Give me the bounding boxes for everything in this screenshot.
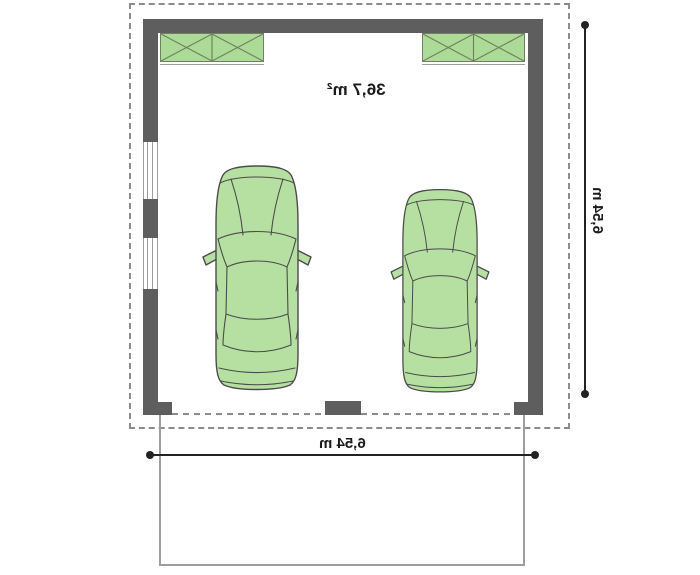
crossed-box-icon [423, 34, 524, 61]
wall-left-lower [143, 289, 158, 415]
dimension-label-right-text: 6,54 m [588, 187, 605, 234]
dimension-dot [581, 390, 589, 398]
dimension-dot [531, 451, 539, 459]
garage-floor-plan: 36,7 m² 6,54 m 6,54 m [0, 0, 700, 575]
dimension-line-bottom [150, 454, 535, 456]
wall-pier-middle [325, 401, 361, 415]
wall-pier-right [514, 402, 528, 415]
car-left [192, 162, 322, 394]
dimension-label-bottom: 6,54 m [272, 433, 412, 453]
dimension-label-bottom-text: 6,54 m [319, 435, 366, 452]
dimension-dot [581, 21, 589, 29]
wall-pier-left [158, 402, 172, 415]
dimension-label-right: 6,54 m [567, 150, 627, 270]
storage-box-left [160, 33, 264, 62]
dimension-dot [146, 451, 154, 459]
car-icon [192, 162, 322, 394]
wall-top [143, 19, 543, 33]
wall-left-upper [143, 19, 158, 142]
storage-edge-line-left [160, 64, 264, 65]
window-symbol-lower [143, 238, 158, 289]
crossed-box-icon [161, 34, 263, 61]
wall-left-middle [143, 199, 158, 238]
wall-right [528, 19, 543, 415]
storage-box-right [422, 33, 525, 62]
car-icon [377, 186, 503, 396]
car-right [377, 186, 503, 396]
area-label: 36,7 m² [286, 78, 426, 102]
area-label-text: 36,7 m² [327, 80, 386, 100]
storage-edge-line-right [422, 64, 525, 65]
window-symbol-upper [143, 142, 158, 199]
